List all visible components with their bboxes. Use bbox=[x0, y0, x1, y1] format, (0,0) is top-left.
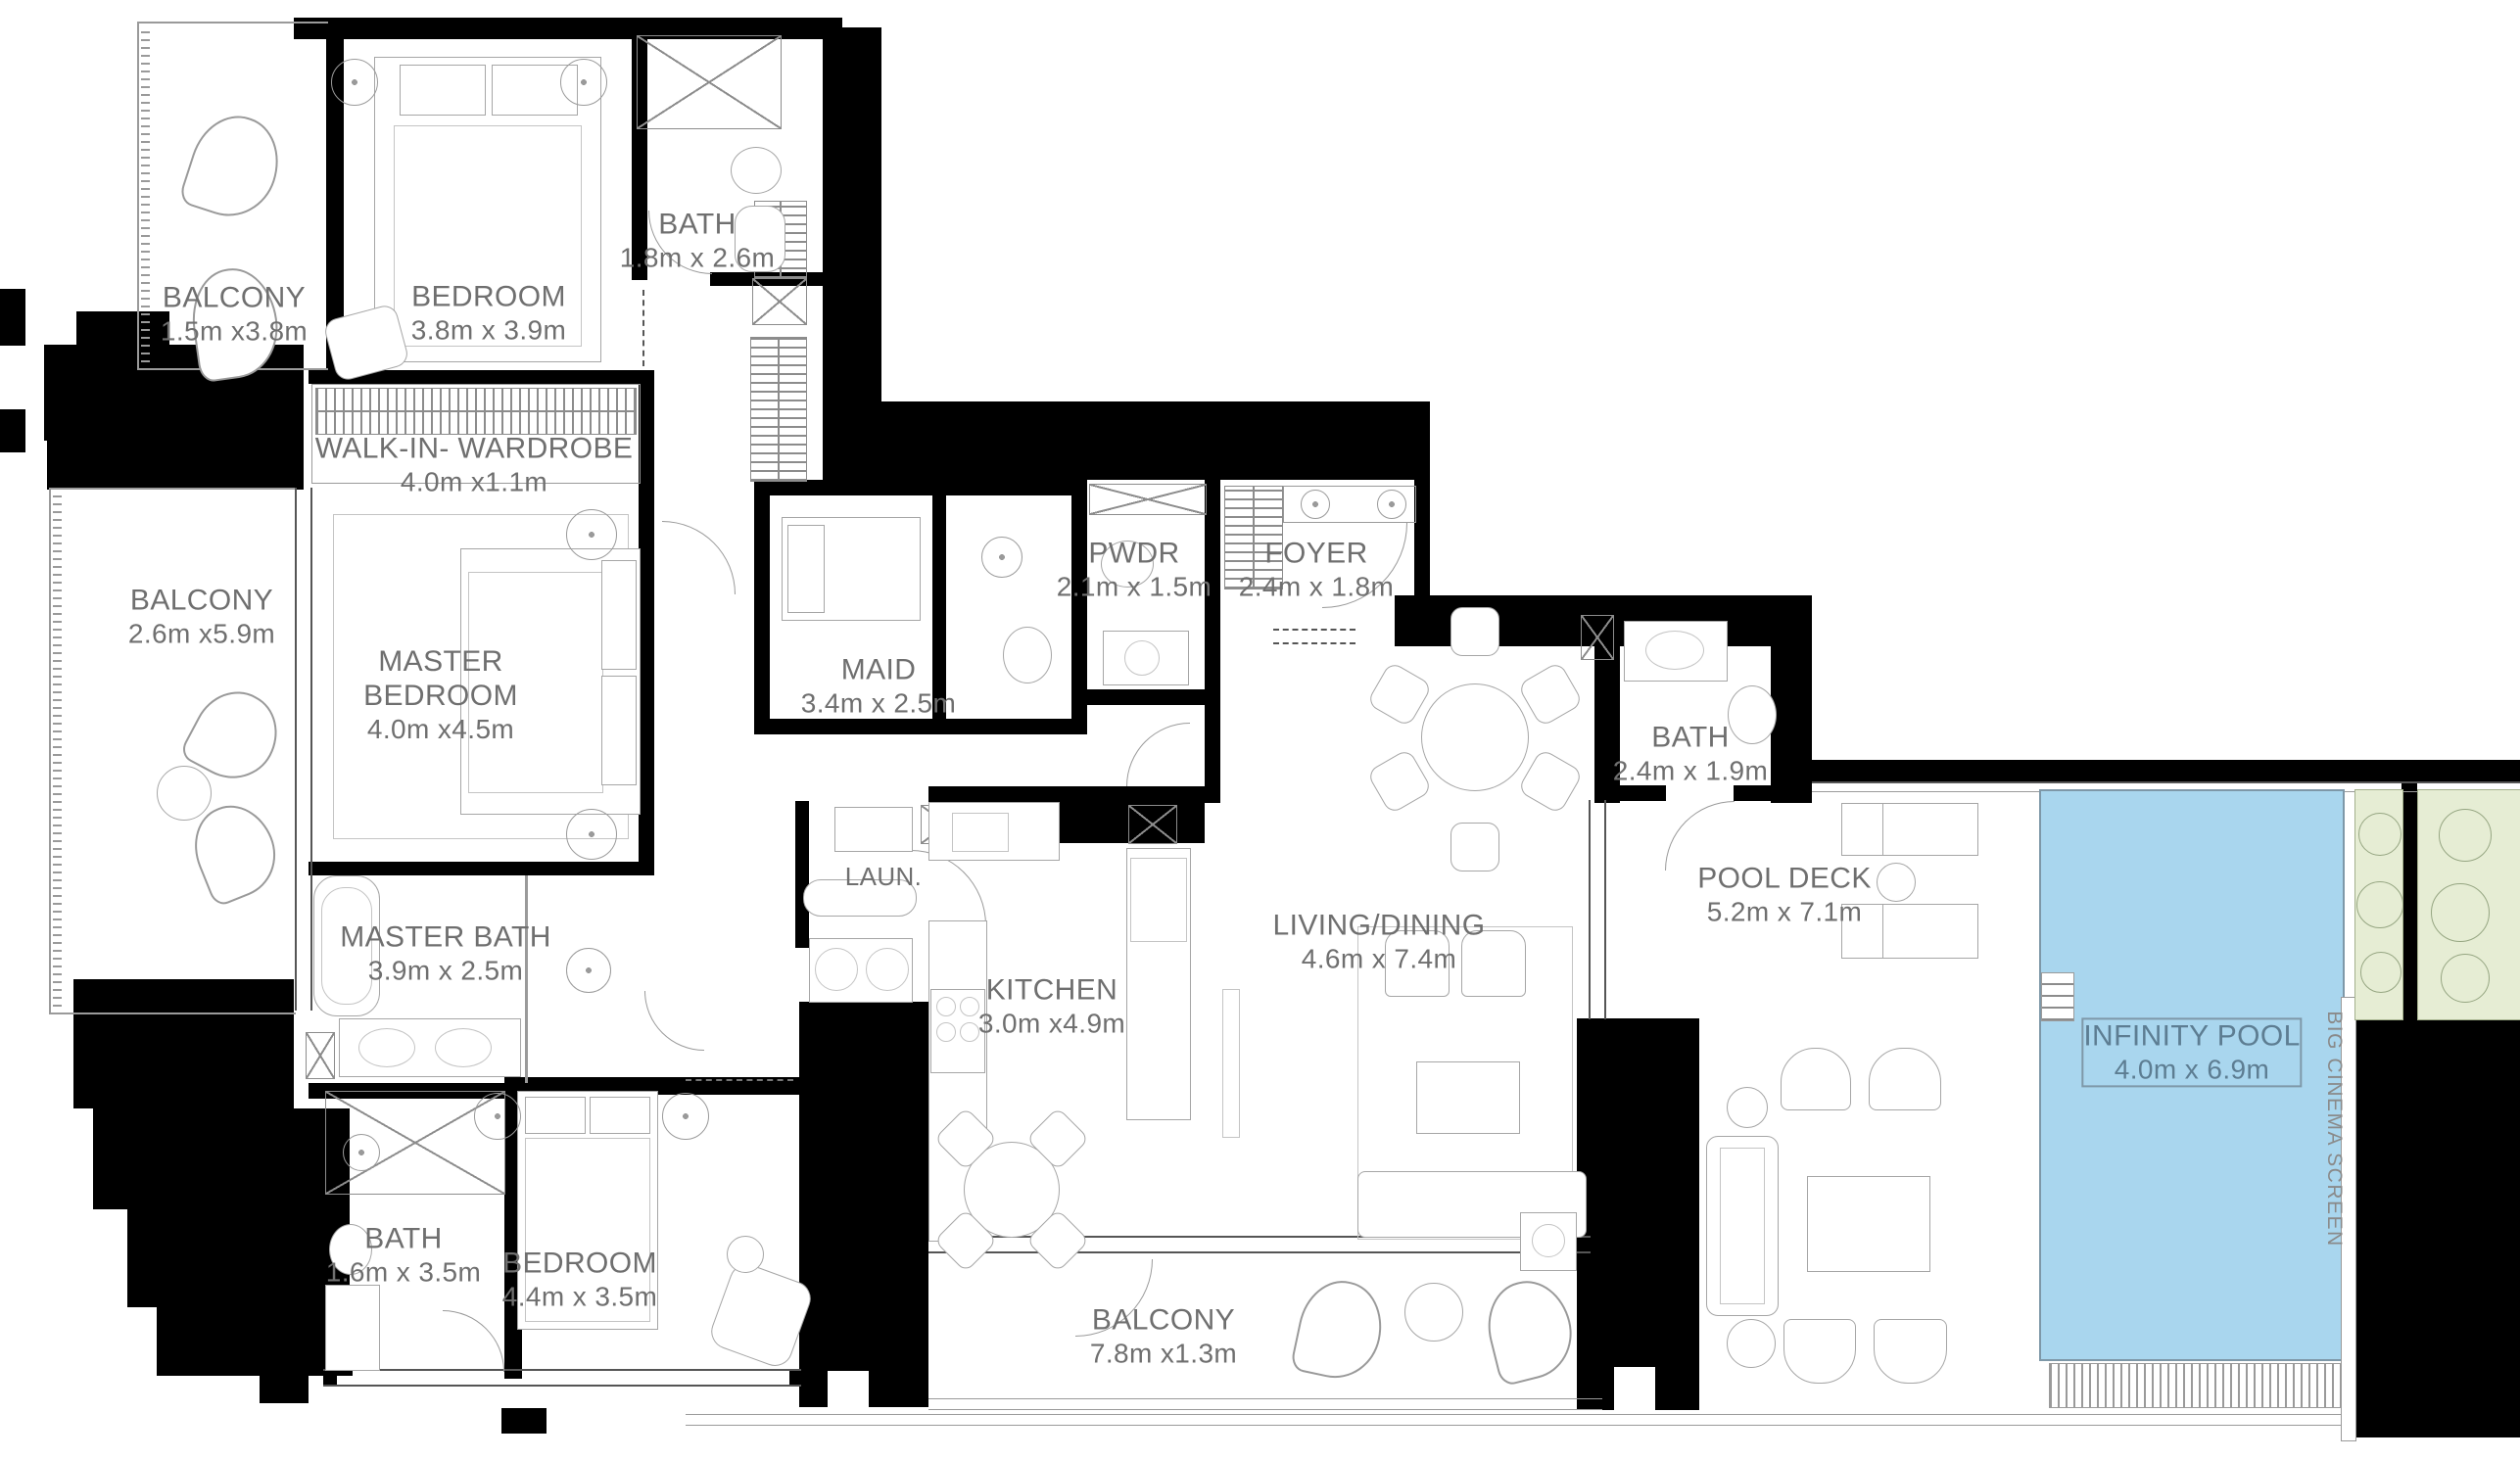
room-label-maid: MAID 3.4m x 2.5m bbox=[801, 653, 956, 719]
pool-ladder bbox=[2041, 972, 2074, 1021]
wall-laundry-left bbox=[795, 801, 809, 948]
wall-bottom-pier bbox=[260, 1376, 309, 1403]
room-dims: 4.6m x 7.4m bbox=[1273, 943, 1486, 974]
wall-master-right bbox=[639, 370, 654, 875]
room-label-bath-top: BATH 1.8m x 2.6m bbox=[620, 208, 775, 273]
room-dims: 1.5m x3.8m bbox=[161, 315, 308, 347]
corridor-dashed-door bbox=[642, 290, 650, 366]
room-name: POOL DECK bbox=[1697, 862, 1872, 896]
ceiling-fan-icon bbox=[560, 59, 607, 106]
room-dims: 7.8m x1.3m bbox=[1090, 1338, 1237, 1369]
room-label-pool-deck: POOL DECK 5.2m x 7.1m bbox=[1697, 862, 1872, 927]
room-dims: 3.8m x 3.9m bbox=[411, 314, 566, 346]
room-label-foyer: FOYER 2.4m x 1.8m bbox=[1239, 537, 1394, 602]
room-name: MASTER BATH bbox=[340, 920, 551, 955]
window-bedroom-lower bbox=[323, 1369, 801, 1387]
wall-maid-bottom bbox=[754, 719, 1087, 734]
coffee-table bbox=[1416, 1061, 1520, 1134]
room-name: BALCONY bbox=[128, 584, 275, 618]
door-notch-kitchen-hall bbox=[828, 1371, 869, 1407]
wall-below-planters-mass bbox=[2354, 1007, 2520, 1437]
door-arc-laundry bbox=[911, 850, 986, 925]
sink-basin bbox=[1124, 640, 1160, 676]
room-dims: 4.4m x 3.5m bbox=[502, 1281, 657, 1312]
door-notch-pool-col bbox=[1614, 1367, 1655, 1410]
wall-bottom-left-step-2 bbox=[93, 1108, 350, 1209]
sink-basin bbox=[435, 1028, 492, 1067]
room-name: BEDROOM bbox=[411, 280, 566, 314]
pillow bbox=[590, 1097, 650, 1134]
kitchen-sink bbox=[952, 813, 1009, 852]
side-table bbox=[1877, 863, 1916, 902]
pillow bbox=[601, 676, 637, 785]
door-arc-maid-bath bbox=[1126, 723, 1190, 786]
tv-console bbox=[1222, 989, 1240, 1138]
grill-burner bbox=[1532, 1224, 1565, 1257]
room-dims: 2.1m x 1.5m bbox=[1057, 571, 1212, 602]
door-arc-bath-lower bbox=[443, 1310, 504, 1372]
room-name: BATH bbox=[620, 208, 775, 242]
pillow bbox=[525, 1097, 586, 1134]
wall-bottom-left-step-3 bbox=[127, 1209, 350, 1307]
vanity-sink bbox=[325, 1285, 380, 1371]
armchair bbox=[1783, 1319, 1856, 1384]
ceiling-fan-icon bbox=[662, 1093, 709, 1140]
room-dims: 3.4m x 2.5m bbox=[801, 687, 956, 719]
wall-entry-top-mass bbox=[881, 401, 1430, 480]
shaft-x-kitchen-b bbox=[1128, 805, 1177, 844]
linen-shelf-corridor bbox=[750, 337, 807, 482]
door-arc-master-bath bbox=[644, 991, 704, 1051]
ceiling-fan-icon bbox=[474, 1093, 521, 1140]
room-dims: 3.0m x4.9m bbox=[978, 1008, 1125, 1039]
ceiling-fan-icon bbox=[566, 809, 617, 860]
shaft-x-living-top bbox=[1581, 615, 1614, 660]
side-table bbox=[1727, 1087, 1768, 1128]
foyer-shelf-knob-a bbox=[1301, 490, 1330, 519]
balcony-bottom-outer-rail bbox=[928, 1398, 1602, 1410]
outdoor-chair bbox=[1478, 1272, 1582, 1387]
closet-x-pwdr bbox=[1089, 484, 1207, 515]
sink-basin bbox=[358, 1028, 415, 1067]
room-dims: 2.6m x5.9m bbox=[128, 618, 275, 649]
dining-chair bbox=[1366, 748, 1433, 815]
balcony-top-railing bbox=[141, 25, 150, 362]
side-table bbox=[1727, 1319, 1776, 1368]
dining-chair bbox=[1366, 661, 1433, 728]
room-label-balcony-left: BALCONY 2.6m x5.9m bbox=[128, 584, 275, 649]
shower bbox=[637, 35, 782, 129]
room-name: LAUN. bbox=[845, 862, 923, 891]
room-dims: 4.0m x 6.9m bbox=[2083, 1054, 2300, 1085]
room-label-wardrobe: WALK-IN- WARDROBE 4.0m x1.1m bbox=[315, 432, 634, 497]
coffee-table bbox=[1807, 1176, 1930, 1272]
wall-bottom-left-step-4 bbox=[157, 1307, 353, 1376]
window-living-pool bbox=[1589, 800, 1606, 1019]
side-table bbox=[1404, 1283, 1463, 1342]
toilet bbox=[731, 147, 782, 194]
wall-maid-top bbox=[770, 480, 1087, 495]
bottom-slab-line bbox=[686, 1414, 2351, 1426]
wall-bath-guest-bottom-r bbox=[1734, 785, 1771, 801]
wall-hall-maid bbox=[754, 480, 770, 734]
door-arc-bath-guest bbox=[1665, 801, 1735, 871]
plant-icon bbox=[2358, 813, 2401, 856]
wall-balcony-pool-col bbox=[1577, 1018, 1699, 1410]
room-label-pwdr: PWDR 2.1m x 1.5m bbox=[1057, 537, 1212, 602]
wall-foyer-right bbox=[1414, 480, 1430, 609]
wall-slab-pier bbox=[501, 1408, 547, 1434]
wall-top-right-band bbox=[823, 27, 881, 480]
room-label-kitchen: KITCHEN 3.0m x4.9m bbox=[978, 973, 1125, 1039]
sofa-seat bbox=[1720, 1148, 1765, 1304]
room-label-balcony-top: BALCONY 1.5m x3.8m bbox=[161, 281, 308, 347]
sun-lounger bbox=[1882, 803, 1978, 856]
dining-chair bbox=[1450, 607, 1499, 656]
dining-table bbox=[1421, 683, 1529, 791]
sun-lounger bbox=[1882, 904, 1978, 959]
room-name: PWDR bbox=[1057, 537, 1212, 571]
room-label-living-dining: LIVING/DINING 4.6m x 7.4m bbox=[1273, 909, 1486, 974]
room-name: BIG CINEMA SCREEN bbox=[2322, 1011, 2346, 1247]
room-name: BATH bbox=[326, 1222, 481, 1256]
room-dims: 5.2m x 7.1m bbox=[1697, 896, 1872, 927]
room-name: WALK-IN- WARDROBE bbox=[315, 432, 634, 466]
dryer-drum bbox=[866, 948, 909, 991]
fridge bbox=[1130, 858, 1187, 942]
sun-lounger bbox=[1841, 803, 1886, 856]
room-dims: 1.8m x 2.6m bbox=[620, 242, 775, 273]
shower-head-icon bbox=[981, 537, 1022, 578]
wall-planter-divider bbox=[2401, 781, 2417, 1018]
plant-icon bbox=[2439, 809, 2492, 862]
room-name: INFINITY POOL bbox=[2083, 1019, 2300, 1054]
wardrobe-hanger-strip bbox=[315, 388, 637, 435]
room-label-master-bedroom: MASTER BEDROOM 4.0m x4.5m bbox=[351, 645, 532, 745]
burner bbox=[936, 997, 956, 1016]
dining-chair bbox=[1450, 823, 1499, 871]
armchair bbox=[1869, 1048, 1941, 1110]
wall-pool-top-band bbox=[1812, 760, 2520, 781]
room-label-bath-lower: BATH 1.6m x 3.5m bbox=[326, 1222, 481, 1288]
room-dims: 2.4m x 1.9m bbox=[1613, 755, 1768, 786]
wall-bath-guest-bottom-l bbox=[1619, 785, 1666, 801]
room-label-infinity-pool: INFINITY POOL 4.0m x 6.9m bbox=[2081, 1017, 2302, 1087]
door-arc-master-hall bbox=[662, 521, 736, 594]
burner bbox=[960, 1022, 979, 1042]
room-dims: 1.6m x 3.5m bbox=[326, 1256, 481, 1288]
room-name: BALCONY bbox=[1090, 1303, 1237, 1338]
room-name: BEDROOM bbox=[502, 1247, 657, 1281]
room-name: BATH bbox=[1613, 721, 1768, 755]
room-label-bedroom-top: BEDROOM 3.8m x 3.9m bbox=[411, 280, 566, 346]
room-label-balcony-bottom: BALCONY 7.8m x1.3m bbox=[1090, 1303, 1237, 1369]
sink-basin bbox=[1645, 631, 1704, 670]
plant-icon bbox=[2356, 881, 2403, 928]
wall-bath-guest-right-col bbox=[1771, 595, 1812, 803]
room-name: MASTER BEDROOM bbox=[351, 645, 532, 714]
pool-deck-hatch bbox=[2049, 1363, 2341, 1408]
room-label-bath-guest: BATH 2.4m x 1.9m bbox=[1613, 721, 1768, 786]
room-label-master-bath: MASTER BATH 3.9m x 2.5m bbox=[340, 920, 551, 986]
hall-dashed-line bbox=[686, 1079, 793, 1085]
room-name: KITCHEN bbox=[978, 973, 1125, 1008]
room-name: BALCONY bbox=[161, 281, 308, 315]
wall-pwdr-bottom bbox=[1071, 689, 1220, 705]
burner bbox=[960, 997, 979, 1016]
armchair bbox=[1781, 1048, 1851, 1110]
room-label-bedroom-lower: BEDROOM 4.4m x 3.5m bbox=[502, 1247, 657, 1312]
room-dims: 3.9m x 2.5m bbox=[340, 955, 551, 986]
room-dims: 2.4m x 1.8m bbox=[1239, 571, 1394, 602]
pillow bbox=[787, 525, 825, 613]
side-table bbox=[157, 766, 212, 821]
room-dims: 4.0m x1.1m bbox=[315, 466, 634, 497]
wall-master-bath-top bbox=[309, 862, 651, 875]
wall-kitchen-top-a bbox=[928, 786, 1058, 802]
foyer-shelf-knob-b bbox=[1377, 490, 1406, 519]
shower-head-icon bbox=[566, 948, 611, 993]
dining-chair bbox=[1517, 661, 1584, 728]
room-label-laundry: LAUN. bbox=[845, 862, 923, 891]
pillow bbox=[400, 65, 486, 116]
shower-head-icon bbox=[343, 1134, 380, 1171]
washer-drum bbox=[815, 948, 858, 991]
label-cinema-screen: BIG CINEMA SCREEN bbox=[2322, 1011, 2346, 1247]
room-name: MAID bbox=[801, 653, 956, 687]
pillow bbox=[601, 560, 637, 670]
shaft-x-corridor bbox=[752, 278, 807, 325]
room-name: FOYER bbox=[1239, 537, 1394, 571]
laundry-sink bbox=[834, 807, 913, 852]
plant-icon bbox=[2431, 883, 2490, 942]
dining-chair bbox=[1517, 748, 1584, 815]
wall-hall-living bbox=[1205, 705, 1220, 803]
ceiling-fan-icon bbox=[566, 509, 617, 560]
room-dims: 4.0m x4.5m bbox=[351, 714, 532, 745]
plant-icon bbox=[2360, 952, 2401, 993]
armchair bbox=[1874, 1319, 1947, 1384]
wall-kitchen-left-mass bbox=[799, 1002, 928, 1407]
burner bbox=[936, 1022, 956, 1042]
outdoor-chair bbox=[1290, 1273, 1391, 1386]
shaft-x-master-bath bbox=[306, 1032, 335, 1079]
entry-dashed-threshold bbox=[1273, 629, 1355, 644]
window-balcony-master bbox=[295, 488, 312, 1011]
room-name: LIVING/DINING bbox=[1273, 909, 1486, 943]
floor-plan: BALCONY 1.5m x3.8m BEDROOM 3.8m x 3.9m B… bbox=[0, 0, 2520, 1460]
ceiling-fan-icon bbox=[331, 59, 378, 106]
toilet bbox=[1003, 627, 1052, 683]
plant-icon bbox=[2441, 954, 2490, 1003]
wall-left-stub-top bbox=[0, 289, 25, 346]
balcony-left-railing bbox=[53, 492, 62, 1007]
wall-left-stub-mid bbox=[0, 409, 25, 452]
side-table bbox=[727, 1236, 764, 1273]
wall-left-step-c bbox=[47, 439, 304, 490]
